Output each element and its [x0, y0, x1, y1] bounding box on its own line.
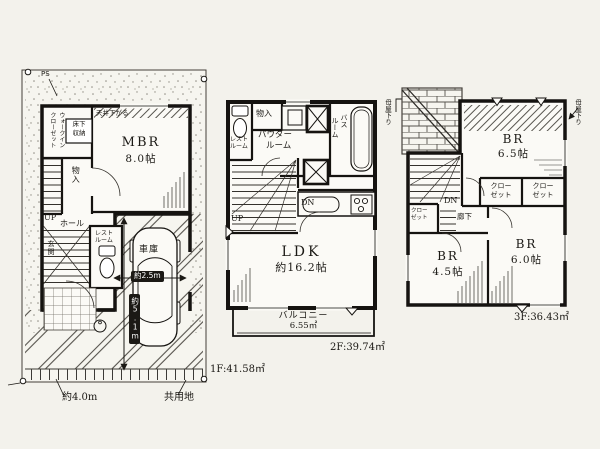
floor1-area-label: 1F:41.58㎡ — [210, 364, 265, 376]
gatepost-icon — [94, 320, 106, 332]
closet2-label-line1: クロー — [523, 182, 563, 190]
balcony-name-label: バルコニー — [233, 311, 374, 321]
closet-small-label-line2: ゼット — [411, 215, 428, 221]
ceiling-lowered-note: 天井下がる — [96, 110, 129, 117]
br65-name-label: BR — [462, 133, 565, 147]
hallway-label: 廊下 — [457, 213, 472, 222]
floor2-building — [226, 99, 409, 336]
garage-depth-dimension: 約5.1m — [129, 294, 140, 344]
br65-size-label: 6.5帖 — [462, 148, 565, 160]
br45-size-label: 4.5帖 — [408, 266, 488, 278]
floor-storage-label-line2: 収納 — [67, 130, 91, 137]
dn-label-2f: DN — [301, 198, 314, 207]
floor3-building — [402, 88, 578, 312]
closet1-label-line1: クロー — [481, 182, 521, 190]
closet1-label-line2: ゼット — [481, 191, 521, 199]
bath-label-line2: ルーム — [331, 117, 339, 138]
ldk-name-label: LDK — [228, 244, 375, 260]
ldk-size-label: 約16.2帖 — [228, 262, 375, 275]
storage-label-1f: 物入 — [71, 166, 80, 184]
mbr-name-label: MBR — [92, 136, 190, 151]
roof-note-left-label: 母屋下り — [383, 99, 390, 125]
ps-label: PS — [41, 70, 50, 78]
floorplan-canvas: PS ウォークイン クローゼット 床下 収納 天井下がる MBR 8.0帖 物入… — [0, 0, 600, 449]
restroom-2f-label-line2: ルーム — [230, 144, 248, 151]
floor-storage-label-line1: 床下 — [67, 121, 91, 128]
washbasin-icon — [282, 106, 306, 130]
toilet-1f-icon — [99, 246, 115, 278]
balcony-size-label: 6.55㎡ — [233, 322, 374, 332]
roof-note-right-label: 母屋下り — [573, 99, 580, 125]
dn-label-3f: DN — [444, 196, 457, 205]
br60-name-label: BR — [488, 238, 565, 252]
garage-label: 車庫 — [138, 245, 160, 255]
front-road-width-label: 約4.0m — [62, 392, 97, 404]
walk-in-closet-label-line1: ウォークイン — [57, 112, 64, 148]
storage-label-2f: 物入 — [256, 109, 272, 118]
floor2-area-label: 2F:39.74㎡ — [330, 342, 385, 354]
powder-room-label-line2: ルーム — [266, 142, 291, 152]
br60-size-label: 6.0帖 — [488, 254, 565, 266]
br45-name-label: BR — [408, 250, 488, 264]
powder-room-label-line1: パウダー — [258, 131, 292, 141]
level-marker-icons-3f — [516, 305, 528, 312]
bathtub-icon — [351, 107, 372, 171]
mbr-size-label: 8.0帖 — [92, 153, 190, 165]
closet-small-label-line1: クロー — [411, 208, 428, 214]
floor3-area-label: 3F:36.43㎡ — [514, 312, 569, 324]
plan-graphics — [0, 0, 600, 449]
bath-label-line1: バス — [340, 114, 348, 128]
up-label-2f: UP — [231, 214, 243, 223]
restroom-1f-label-line2: ルーム — [95, 238, 113, 245]
up-label-1f: UP — [44, 213, 56, 222]
shared-land-label: 共用地 — [164, 392, 194, 404]
hall-label: ホール — [60, 219, 84, 228]
garage-width-dimension: 約2.5m — [131, 271, 164, 282]
walk-in-closet-label-line2: クローゼット — [48, 112, 55, 148]
entrance-label: 玄関 — [47, 240, 55, 256]
closet2-label-line2: ゼット — [523, 191, 563, 199]
